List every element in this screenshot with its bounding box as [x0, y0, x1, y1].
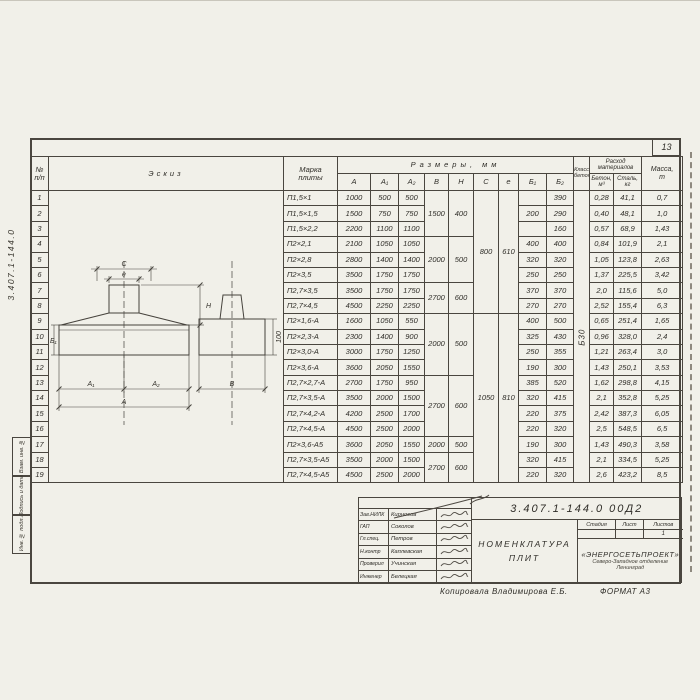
col-header-e: e — [499, 174, 519, 191]
table-cell: 520 — [547, 375, 574, 390]
table-cell: 1,0 — [642, 206, 683, 221]
table-cell: 225,5 — [614, 267, 642, 282]
table-cell: 220 — [519, 468, 547, 483]
table-cell: 355 — [547, 344, 574, 359]
table-cell: 415 — [547, 391, 574, 406]
table-cell: 4500 — [338, 468, 371, 483]
table-cell: 3500 — [338, 283, 371, 298]
table-cell: П2,7×3,5 — [284, 283, 338, 298]
table-cell: 298,8 — [614, 375, 642, 390]
table-cell: 0,96 — [590, 329, 614, 344]
table-cell: 0,40 — [590, 206, 614, 221]
sheet-value — [616, 530, 644, 539]
table-cell: 548,5 — [614, 421, 642, 436]
table-cell: 2,0 — [590, 283, 614, 298]
table-cell: П2×2,3-А — [284, 329, 338, 344]
table-cell: 1400 — [399, 252, 425, 267]
table-cell: 385 — [519, 375, 547, 390]
table-cell: 320 — [519, 452, 547, 467]
org-name: «ЭНЕРГОСЕТЬПРОЕКТ» — [581, 550, 679, 559]
signature-role: Гл.спец. — [359, 534, 389, 545]
col-header-A2: A₂ — [399, 174, 425, 191]
stamp-signature-block: Зав.НИЛККирносовГАПСоколовГл.спец.Петров… — [359, 508, 471, 583]
table-cell: 4,15 — [642, 375, 683, 390]
margin-box-inv-podl: Инв. № подл. — [12, 515, 31, 554]
col-header-mark: Марка плиты — [284, 157, 338, 191]
table-cell: 1100 — [399, 221, 425, 236]
table-cell: 115,6 — [614, 283, 642, 298]
signature-row: Зав.НИЛККирносов — [359, 509, 471, 521]
table-cell: 810 — [499, 314, 519, 483]
col-header-A: A — [338, 174, 371, 191]
table-cell: 370 — [547, 283, 574, 298]
dim-label-b1: Б₁ — [50, 338, 58, 345]
col-header-dims-group: Размеры, мм — [338, 157, 574, 174]
signature-role: Н.контр — [359, 546, 389, 557]
table-cell: 370 — [519, 283, 547, 298]
drawing-sheet: 13 3.407.1-144.0 Взам. инв. № Подпись и … — [0, 0, 700, 700]
col-header-B1: Б₁ — [519, 174, 547, 191]
title-block: 3.407.1-144.0 00Д2 Номенклатура плит Ста… — [358, 497, 682, 583]
table-cell: 610 — [499, 191, 519, 314]
stamp-stage-block: Стадия Лист Листов 1 «ЭНЕРГОСЕТЬПРОЕКТ» … — [577, 520, 682, 582]
table-cell: 2000 — [399, 468, 425, 483]
table-cell: 1550 — [399, 437, 425, 452]
table-cell: 2000 — [371, 452, 399, 467]
table-cell: 4 — [31, 237, 49, 252]
table-cell: 1,43 — [590, 437, 614, 452]
signature-row: ПроверилУчинская — [359, 559, 471, 571]
org-city: Ленинград — [616, 565, 644, 571]
table-cell: 2700 — [338, 375, 371, 390]
table-cell: 3 — [31, 221, 49, 236]
table-cell: 2000 — [425, 437, 449, 452]
table-cell: 950 — [399, 375, 425, 390]
table-cell: П2,7×2,7-А — [284, 375, 338, 390]
signature-row: ГАПСоколов — [359, 521, 471, 533]
table-cell: 400 — [519, 237, 547, 252]
margin-box-vzam-inv: Взам. инв. № — [12, 437, 31, 476]
table-cell: 160 — [547, 221, 574, 236]
table-cell: 500 — [449, 237, 474, 283]
col-header-A1: A₁ — [371, 174, 399, 191]
table-cell: 1500 — [399, 452, 425, 467]
table-cell: 5,25 — [642, 391, 683, 406]
table-cell: 16 — [31, 421, 49, 436]
table-cell: 7 — [31, 283, 49, 298]
table-cell: 1,43 — [590, 360, 614, 375]
table-header: № п/п Эскиз Марка плиты Размеры, мм Клас… — [31, 157, 683, 191]
table-cell: 415 — [547, 452, 574, 467]
table-cell: П2,7×4,5 — [284, 298, 338, 313]
col-header-concrete-class: Класс бетона — [574, 157, 590, 191]
table-cell: 8,5 — [642, 468, 683, 483]
table-cell: Б30 — [574, 191, 590, 483]
table-cell: 2,6 — [590, 468, 614, 483]
table-cell: П2×3,6-А — [284, 360, 338, 375]
table-cell: 600 — [449, 283, 474, 314]
table-cell: 123,8 — [614, 252, 642, 267]
table-cell: 2500 — [371, 421, 399, 436]
stamp-title: Номенклатура плит — [471, 520, 577, 582]
page-number-box: 13 — [652, 139, 680, 156]
table-cell: 1400 — [371, 329, 399, 344]
table-cell: 423,2 — [614, 468, 642, 483]
signature-mark — [437, 509, 471, 520]
table-cell: 2700 — [425, 283, 449, 314]
table-cell: 1,05 — [590, 252, 614, 267]
table-cell: 1,21 — [590, 344, 614, 359]
table-cell: 500 — [449, 437, 474, 452]
table-cell: 1000 — [338, 191, 371, 206]
table-cell: 250 — [519, 267, 547, 282]
table-cell: П2×3,0-А — [284, 344, 338, 359]
table-cell: 190 — [519, 360, 547, 375]
table-cell: 290 — [547, 206, 574, 221]
table-cell: 2100 — [338, 237, 371, 252]
signature-mark — [437, 559, 471, 570]
table-cell: 430 — [547, 329, 574, 344]
table-cell: 2,4 — [642, 329, 683, 344]
signature-role: Зав.НИЛК — [359, 509, 389, 520]
table-cell: 2,1 — [590, 452, 614, 467]
table-cell: 2,52 — [590, 298, 614, 313]
table-cell: 2050 — [371, 360, 399, 375]
table-cell: 2050 — [371, 437, 399, 452]
table-cell: 1750 — [371, 375, 399, 390]
table-cell: 550 — [399, 314, 425, 329]
dim-label-c: C — [121, 261, 127, 268]
sheets-label: Листов — [644, 520, 683, 530]
table-cell: 325 — [519, 329, 547, 344]
margin-doc-number: 3.407.1-144.0 — [6, 197, 20, 332]
stamp-doc-number: 3.407.1-144.0 00Д2 — [471, 498, 682, 520]
table-cell: П2×2,8 — [284, 252, 338, 267]
table-cell: 3000 — [338, 344, 371, 359]
signature-name: Учинская — [389, 559, 437, 570]
table-cell: 2000 — [425, 314, 449, 376]
table-cell: 1050 — [371, 314, 399, 329]
table-cell: 500 — [399, 191, 425, 206]
signature-name: Кирносов — [389, 509, 437, 520]
table-cell: 12 — [31, 360, 49, 375]
table-cell: 220 — [519, 406, 547, 421]
stamp-organization: «ЭНЕРГОСЕТЬПРОЕКТ» Северо-Западное отдел… — [578, 539, 683, 582]
table-cell: 320 — [547, 252, 574, 267]
table-cell: 6,05 — [642, 406, 683, 421]
signature-mark — [437, 521, 471, 532]
table-cell: 0,84 — [590, 237, 614, 252]
dim-label-b: B — [230, 381, 235, 388]
signature-role: Инженер — [359, 571, 389, 582]
table-cell: 334,5 — [614, 452, 642, 467]
table-cell: 1,37 — [590, 267, 614, 282]
table-cell: 18 — [31, 452, 49, 467]
perforation-dashed-line — [690, 152, 692, 572]
col-header-mass: Масса, т — [642, 157, 683, 191]
signature-row: ИнженерБелецкая — [359, 571, 471, 583]
table-cell: 2700 — [425, 375, 449, 437]
col-header-sketch: Эскиз — [49, 157, 284, 191]
dim-label-a1: A₁ — [87, 381, 96, 388]
margin-box-podpis-data: Подпись и дата — [12, 476, 31, 515]
table-cell: 1050 — [474, 314, 499, 483]
col-header-num: № п/п — [31, 157, 49, 191]
table-cell: 1500 — [338, 206, 371, 221]
table-cell: П2×1,6-А — [284, 314, 338, 329]
table-cell: 2500 — [371, 468, 399, 483]
col-header-B: B — [425, 174, 449, 191]
dim-label-a: A — [121, 399, 127, 406]
signature-mark — [437, 546, 471, 557]
table-cell: 1,62 — [590, 375, 614, 390]
signature-mark — [437, 571, 471, 582]
col-header-concrete: Бетон, м³ — [590, 174, 614, 191]
table-cell: 400 — [449, 191, 474, 237]
table-cell: 300 — [547, 437, 574, 452]
table-cell: 4500 — [338, 298, 371, 313]
table-cell: 4200 — [338, 406, 371, 421]
table-cell: 250,1 — [614, 360, 642, 375]
sheet-label: Лист — [616, 520, 644, 530]
table-cell: 352,8 — [614, 391, 642, 406]
concrete-class-value: Б30 — [578, 328, 586, 345]
table-cell: 4500 — [338, 421, 371, 436]
signature-name: Петров — [389, 534, 437, 545]
table-cell: 1600 — [338, 314, 371, 329]
table-cell: 320 — [519, 252, 547, 267]
table-cell: 2,63 — [642, 252, 683, 267]
table-cell: 2,42 — [590, 406, 614, 421]
dim-label-a2: A₂ — [151, 381, 160, 388]
table-cell: 0,65 — [590, 314, 614, 329]
table-cell: 270 — [519, 298, 547, 313]
table-cell: 300 — [547, 360, 574, 375]
table-cell: 3500 — [338, 391, 371, 406]
signature-role: ГАП — [359, 521, 389, 532]
table-cell: 2000 — [371, 391, 399, 406]
plate-sketch: C e H Б₁ A₁ A₂ A B 100 — [49, 191, 282, 480]
table-cell: 101,9 — [614, 237, 642, 252]
table-cell: 320 — [547, 421, 574, 436]
table-cell: 1050 — [371, 237, 399, 252]
table-cell: 1050 — [399, 237, 425, 252]
table-cell: 5 — [31, 252, 49, 267]
table-cell: 1750 — [371, 283, 399, 298]
table-cell: 251,4 — [614, 314, 642, 329]
table-cell: 328,0 — [614, 329, 642, 344]
table-cell: 5,0 — [642, 283, 683, 298]
table-cell: 320 — [519, 391, 547, 406]
table-cell: 500 — [371, 191, 399, 206]
table-cell: 6 — [31, 267, 49, 282]
table-cell: 400 — [519, 314, 547, 329]
table-cell: 1750 — [371, 267, 399, 282]
table-cell: 900 — [399, 329, 425, 344]
table-cell: 9 — [31, 314, 49, 329]
signature-row: Гл.спец.Петров — [359, 534, 471, 546]
table-cell: 6,3 — [642, 298, 683, 313]
table-cell: П1,5×1,5 — [284, 206, 338, 221]
table-cell: 3500 — [338, 267, 371, 282]
table-cell: 1750 — [399, 267, 425, 282]
table-cell: 2700 — [425, 452, 449, 483]
col-header-steel: Сталь, кг — [614, 174, 642, 191]
table-cell: 3600 — [338, 437, 371, 452]
signature-name: Каплевская — [389, 546, 437, 557]
table-cell: 0,57 — [590, 221, 614, 236]
table-cell: 375 — [547, 406, 574, 421]
table-cell: 1,43 — [642, 221, 683, 236]
table-cell: 3500 — [338, 452, 371, 467]
col-header-H: H — [449, 174, 474, 191]
table-cell: П2×3,5 — [284, 267, 338, 282]
table-cell: 48,1 — [614, 206, 642, 221]
table-cell: 200 — [519, 206, 547, 221]
table-cell: П1,5×1 — [284, 191, 338, 206]
table-cell — [519, 221, 547, 236]
col-header-C: C — [474, 174, 499, 191]
table-cell: 41,1 — [614, 191, 642, 206]
signature-role: Проверил — [359, 559, 389, 570]
table-cell: 2000 — [399, 421, 425, 436]
table-cell: 68,9 — [614, 221, 642, 236]
table-cell: 1400 — [371, 252, 399, 267]
table-cell: 490,3 — [614, 437, 642, 452]
table-cell: 2000 — [425, 237, 449, 283]
table-cell: 2,1 — [642, 237, 683, 252]
table-cell: 3,58 — [642, 437, 683, 452]
dim-label-e: e — [122, 272, 126, 279]
table-cell: 10 — [31, 329, 49, 344]
format-note: ФОРМАТ А3 — [600, 587, 650, 596]
table-cell: 1250 — [399, 344, 425, 359]
table-cell: 400 — [547, 237, 574, 252]
table-cell: 11 — [31, 344, 49, 359]
table-cell: 1500 — [425, 191, 449, 237]
table-cell: 1700 — [399, 406, 425, 421]
table-cell: 2,5 — [590, 421, 614, 436]
table-cell: 500 — [547, 314, 574, 329]
table-cell: 250 — [519, 344, 547, 359]
page-number: 13 — [661, 142, 671, 152]
table-cell: 0,7 — [642, 191, 683, 206]
table-cell: 14 — [31, 391, 49, 406]
table-cell: 2500 — [371, 406, 399, 421]
frame-top-line — [30, 138, 681, 140]
table-cell: 800 — [474, 191, 499, 314]
table-cell: 3600 — [338, 360, 371, 375]
table-cell: 6,5 — [642, 421, 683, 436]
table-cell: 263,4 — [614, 344, 642, 359]
table-cell: 270 — [547, 298, 574, 313]
table-cell: 750 — [371, 206, 399, 221]
table-cell: П2×2,1 — [284, 237, 338, 252]
stamp-title-line1: Номенклатура — [478, 539, 571, 549]
stage-label: Стадия — [578, 520, 616, 530]
table-cell: 2200 — [338, 221, 371, 236]
table-cell: 220 — [519, 421, 547, 436]
stamp-title-line2: плит — [509, 553, 540, 563]
table-cell: 750 — [399, 206, 425, 221]
table-cell: 1 — [31, 191, 49, 206]
signature-mark — [437, 534, 471, 545]
table-cell: 0,28 — [590, 191, 614, 206]
table-cell: 3,0 — [642, 344, 683, 359]
table-cell: 1550 — [399, 360, 425, 375]
table-cell: 1100 — [371, 221, 399, 236]
copied-by-note: Копировала Владимирова Е.Б. — [440, 587, 568, 596]
table-cell: П2,7×4,2-А — [284, 406, 338, 421]
table-cell: 2,1 — [590, 391, 614, 406]
table-cell: 2 — [31, 206, 49, 221]
table-cell: 1750 — [399, 283, 425, 298]
table-cell: 2300 — [338, 329, 371, 344]
stage-value — [578, 530, 616, 539]
table-cell: 3,42 — [642, 267, 683, 282]
table-cell: П2,7×4,5-А — [284, 421, 338, 436]
table-cell — [519, 191, 547, 206]
table-cell: 2800 — [338, 252, 371, 267]
table-cell: 387,3 — [614, 406, 642, 421]
signature-row: Н.контрКаплевская — [359, 546, 471, 558]
table-cell: 3,53 — [642, 360, 683, 375]
table-cell: 250 — [547, 267, 574, 282]
table-cell: 19 — [31, 468, 49, 483]
table-cell: 13 — [31, 375, 49, 390]
dim-label-100: 100 — [276, 331, 282, 343]
table-cell: 390 — [547, 191, 574, 206]
table-cell: 8 — [31, 298, 49, 313]
table-cell: 500 — [449, 314, 474, 376]
table-cell: П2,7×4,5-А5 — [284, 468, 338, 483]
table-cell: 17 — [31, 437, 49, 452]
table-cell: П2,7×3,5-А — [284, 391, 338, 406]
sheets-value: 1 — [644, 530, 683, 539]
table-cell: 2250 — [399, 298, 425, 313]
table-cell: П2,7×3,5-А5 — [284, 452, 338, 467]
table-cell: П2×3,6-А5 — [284, 437, 338, 452]
table-cell: 5,25 — [642, 452, 683, 467]
table-cell: 600 — [449, 452, 474, 483]
dim-label-h: H — [206, 303, 212, 310]
table-cell: 320 — [547, 468, 574, 483]
table-cell: 1,65 — [642, 314, 683, 329]
signature-name: Соколов — [389, 521, 437, 532]
table-cell: 155,4 — [614, 298, 642, 313]
table-cell: 2250 — [371, 298, 399, 313]
table-cell: 1750 — [371, 344, 399, 359]
signature-name: Белецкая — [389, 571, 437, 582]
sheet-edge-line — [0, 0, 700, 1]
col-header-consumption-group: Расход материалов — [590, 157, 642, 174]
table-cell: 190 — [519, 437, 547, 452]
table-cell: 1500 — [399, 391, 425, 406]
table-cell: 15 — [31, 406, 49, 421]
col-header-B2: Б₂ — [547, 174, 574, 191]
table-cell: П1,5×2,2 — [284, 221, 338, 236]
table-cell: 600 — [449, 375, 474, 437]
